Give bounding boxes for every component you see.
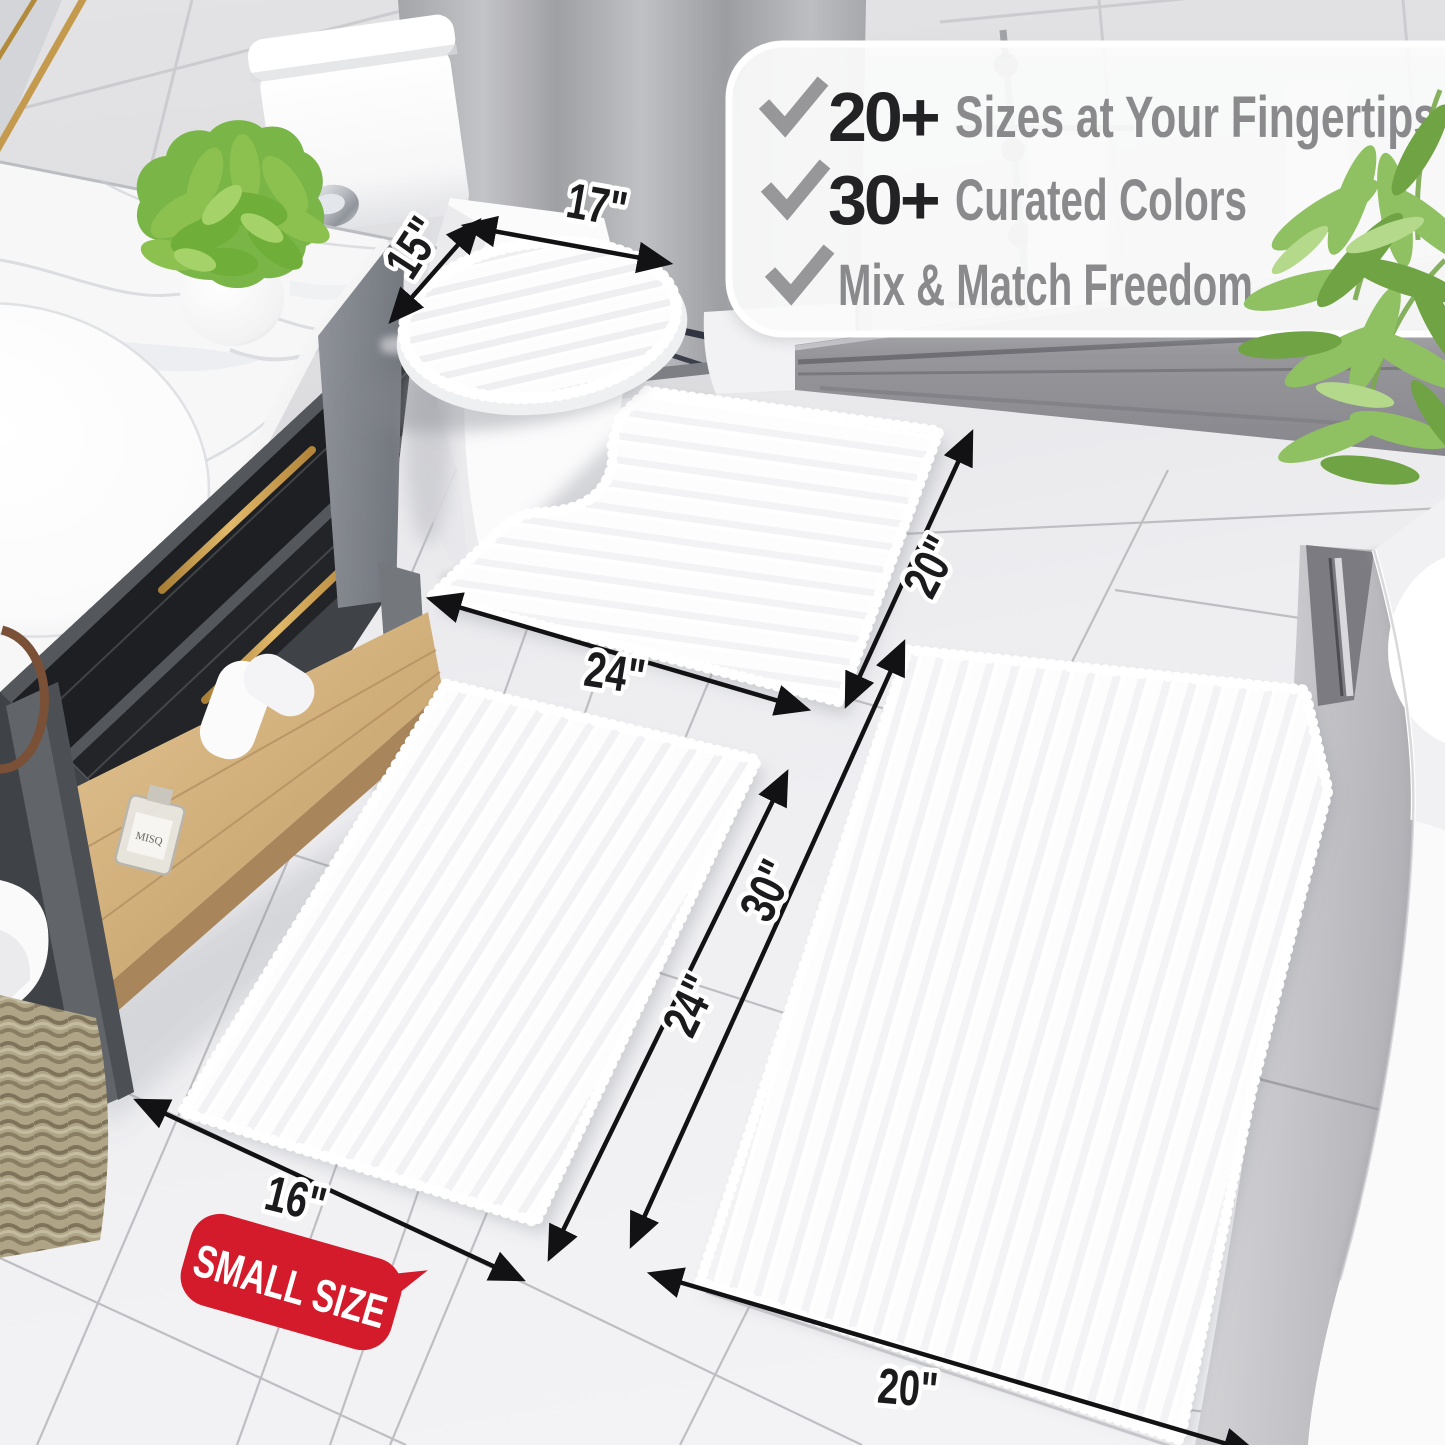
svg-text:24": 24" — [581, 641, 649, 706]
svg-text:17": 17" — [563, 172, 632, 238]
svg-text:30+: 30+ — [828, 161, 939, 239]
svg-text:20+: 20+ — [828, 78, 939, 156]
svg-text:Curated Colors: Curated Colors — [955, 168, 1247, 233]
svg-text:Mix & Match Freedom: Mix & Match Freedom — [838, 253, 1253, 318]
svg-text:Sizes at Your Fingertips: Sizes at Your Fingertips — [955, 85, 1437, 150]
svg-text:20": 20" — [876, 1357, 941, 1418]
